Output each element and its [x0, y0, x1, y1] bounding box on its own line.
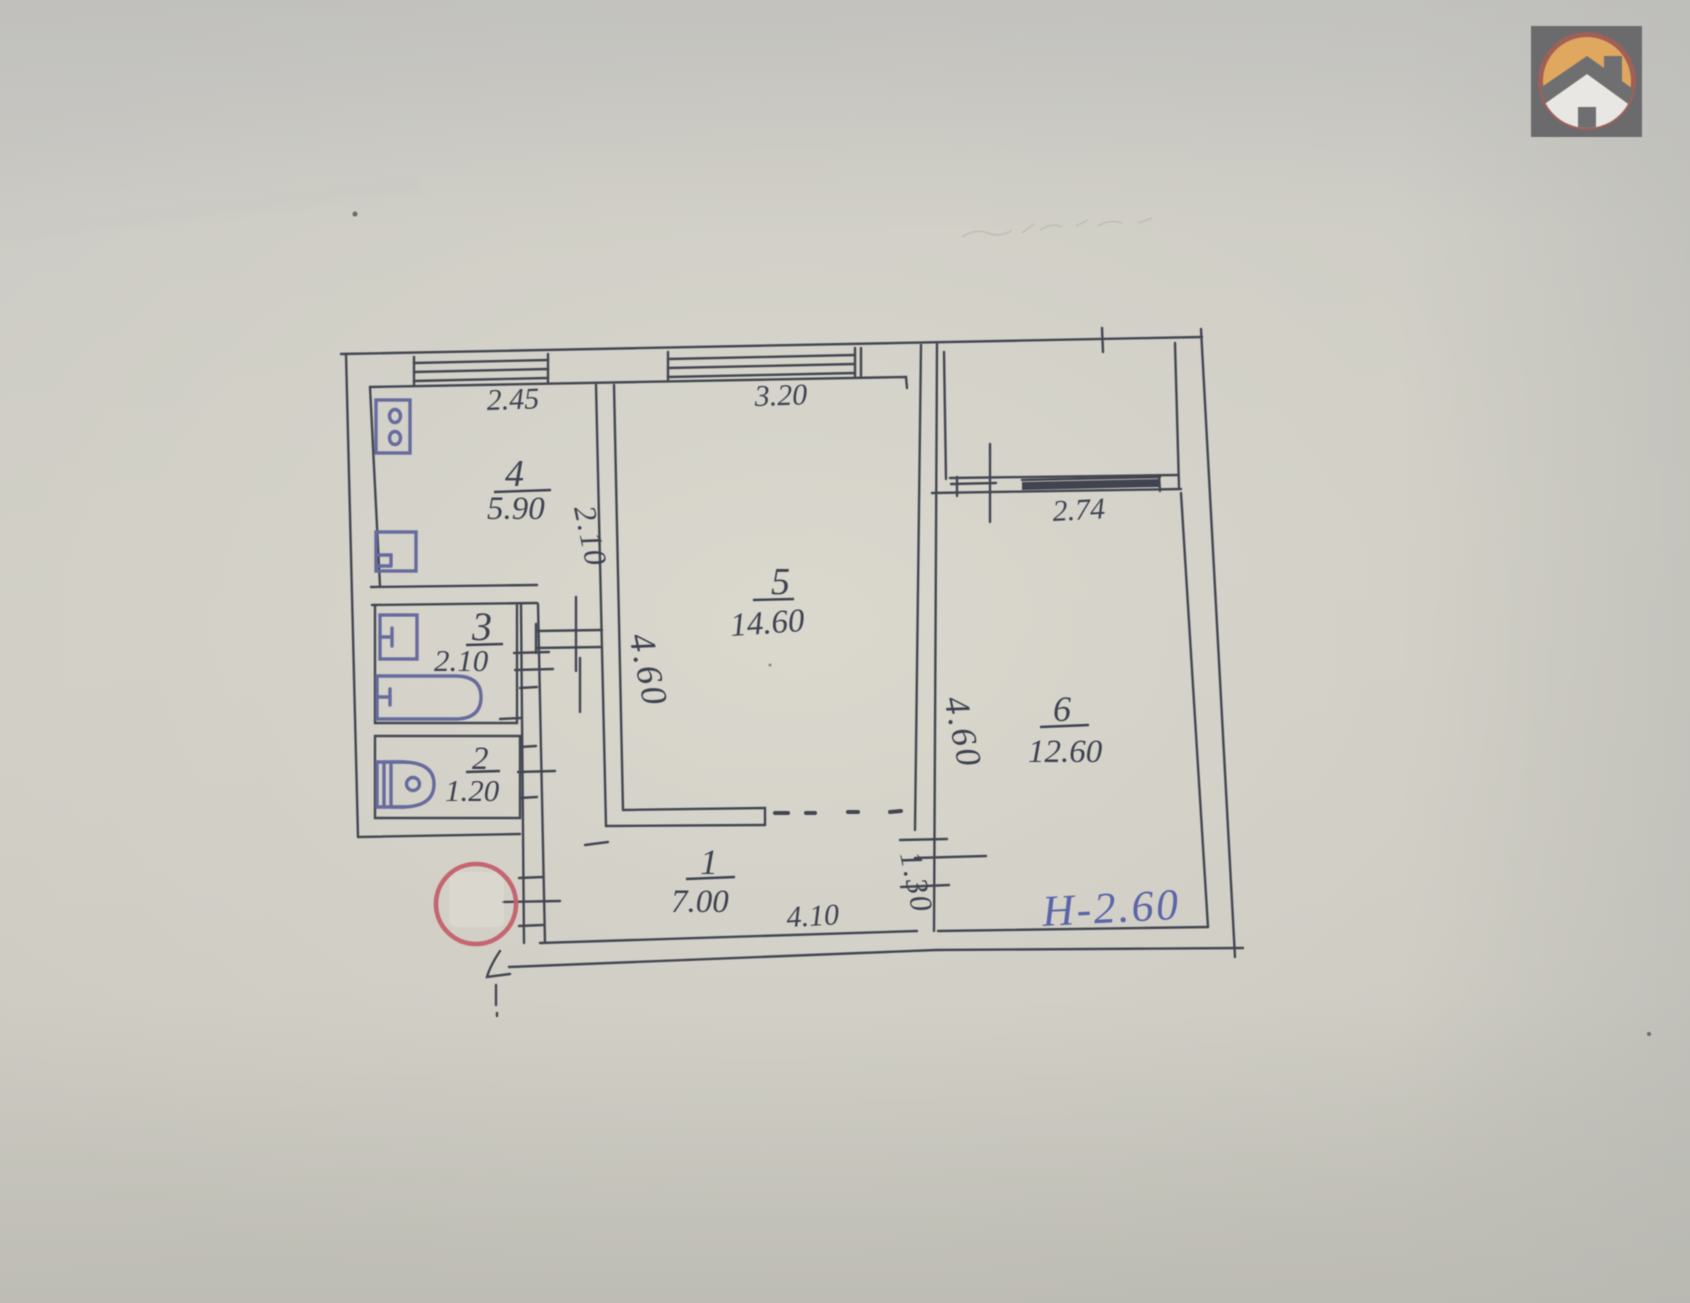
svg-text:2.10: 2.10 — [434, 643, 489, 678]
svg-text:6: 6 — [1053, 689, 1071, 729]
svg-text:14.60: 14.60 — [729, 603, 806, 644]
svg-text:4: 4 — [505, 453, 524, 495]
svg-text:2.45: 2.45 — [486, 382, 540, 417]
svg-text:4.60: 4.60 — [936, 693, 989, 773]
svg-text:1.20: 1.20 — [445, 773, 500, 808]
svg-text:5.90: 5.90 — [487, 491, 545, 527]
svg-text:4.60: 4.60 — [621, 629, 676, 711]
svg-text:7.00: 7.00 — [671, 884, 729, 920]
svg-text:3.20: 3.20 — [753, 378, 808, 413]
svg-text:4.10: 4.10 — [786, 898, 840, 934]
svg-text:12.60: 12.60 — [1028, 734, 1103, 770]
svg-text:2.74: 2.74 — [1052, 492, 1106, 528]
svg-text:H-2.60: H-2.60 — [1040, 880, 1182, 936]
svg-text:1: 1 — [700, 842, 718, 882]
svg-text:2.10: 2.10 — [567, 502, 614, 570]
svg-text:5: 5 — [771, 561, 790, 603]
